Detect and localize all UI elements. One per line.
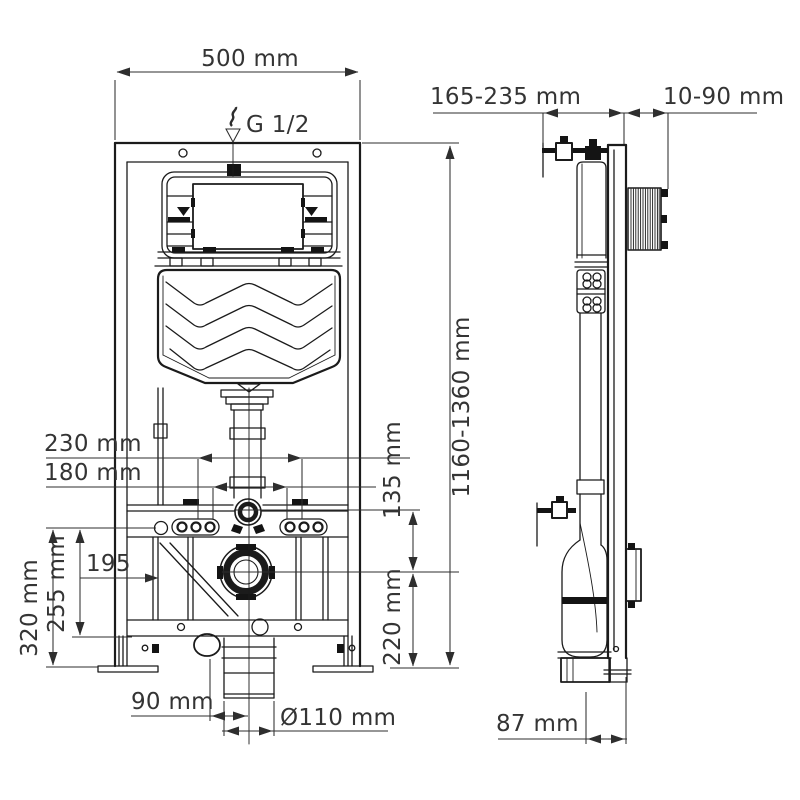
installation-frame-drawing: 500 mm G 1/2 1160-1360 mm 230 mm 180 mm …: [0, 0, 800, 800]
technical-drawing-page: 500 mm G 1/2 1160-1360 mm 230 mm 180 mm …: [0, 0, 800, 800]
dim-wall-offset-label: 10-90 mm: [663, 84, 784, 110]
dim-plate-zone-label: 255 mm: [44, 535, 70, 633]
dim-brace-label: 195: [86, 551, 131, 577]
lower-wall-bracket: [537, 496, 576, 546]
dim-drain-diameter-label: Ø110 mm: [280, 705, 396, 731]
dim-supply-label: G 1/2: [246, 112, 310, 138]
water-level-waves: [166, 282, 332, 305]
dim-width-label: 500 mm: [201, 46, 299, 72]
top-crossbar: [179, 149, 321, 157]
dim-depth-range-label: 165-235 mm: [430, 84, 581, 110]
dim-outlet-height-label: 220 mm: [380, 568, 406, 666]
supply-connector: [227, 164, 241, 176]
dim-flush-outlet-label: 135 mm: [380, 421, 406, 519]
level-mark-right-icon: [305, 207, 318, 216]
dim-height-label: 1160-1360 mm: [449, 316, 475, 497]
side-cistern: [575, 139, 608, 313]
water-supply-icon: [226, 107, 240, 142]
bottom-crossbar: [127, 619, 355, 656]
dim-lower-zone-label: 320 mm: [17, 559, 43, 657]
side-fixing-plate: [626, 543, 641, 608]
side-flush-bend: [562, 313, 619, 657]
side-view: [537, 136, 668, 682]
level-mark-left-icon: [177, 207, 190, 216]
inlet-socket: [194, 634, 220, 656]
dim-fixing-outer-label: 230 mm: [44, 431, 142, 457]
flush-plate-module: [162, 143, 337, 258]
ribbed-wall-anchor: [628, 188, 668, 250]
frame-feet: [98, 636, 373, 672]
dim-fixing-inner-label: 180 mm: [44, 460, 142, 486]
front-dimensions: 500 mm G 1/2 1160-1360 mm 230 mm 180 mm …: [17, 46, 475, 736]
dim-outlet-depth-label: 87 mm: [496, 711, 579, 737]
dim-drain-offset-label: 90 mm: [131, 689, 214, 715]
cistern: [158, 270, 340, 383]
